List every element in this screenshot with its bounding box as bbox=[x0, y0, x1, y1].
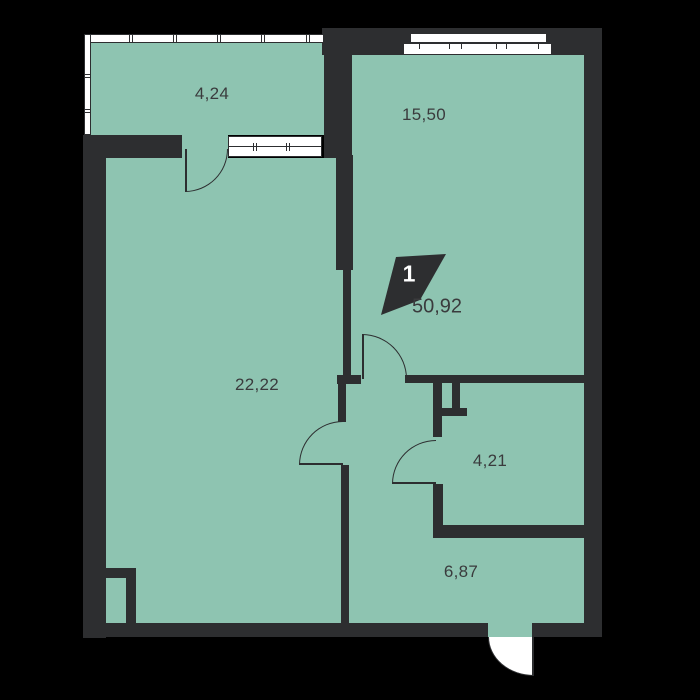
window-balcony-left bbox=[84, 34, 91, 135]
floor-plan: 4,24 15,50 22,22 4,21 6,87 1 50,92 bbox=[0, 0, 700, 700]
window-main-room bbox=[228, 136, 322, 157]
total-area-label: 50,92 bbox=[412, 296, 462, 319]
room-area-label-bathroom: 4,21 bbox=[473, 451, 507, 471]
wall-interior-lower bbox=[341, 465, 349, 637]
room-count-value: 1 bbox=[403, 261, 416, 288]
wall-bathroom-left-upper bbox=[433, 383, 442, 437]
wall-interior-mid bbox=[338, 384, 346, 422]
door-entrance-arc bbox=[488, 637, 534, 676]
wall-door-jamb-cap bbox=[337, 375, 361, 384]
room-area-label-main-room: 22,22 bbox=[235, 375, 279, 395]
wall-interior-upper bbox=[343, 270, 351, 378]
wall-right bbox=[584, 28, 602, 637]
room-area-label-balcony: 4,24 bbox=[195, 84, 229, 104]
window-balcony-top bbox=[84, 34, 324, 43]
wall-niche-right bbox=[126, 578, 136, 623]
wall-bottom-left-segment bbox=[83, 623, 488, 637]
floor-main-room bbox=[106, 158, 350, 623]
wall-balcony-divider bbox=[324, 28, 352, 158]
room-area-label-living-room: 15,50 bbox=[402, 105, 446, 125]
window-living-room-lower bbox=[403, 43, 552, 55]
wall-bathroom-top bbox=[405, 375, 602, 383]
room-area-label-hallway: 6,87 bbox=[444, 562, 478, 582]
wall-bathroom-bottom bbox=[433, 525, 602, 538]
wall-duct-horizontal bbox=[442, 408, 467, 416]
floor-entrance-doorway bbox=[488, 623, 532, 638]
window-living-room-upper bbox=[410, 33, 547, 43]
floor-living-room bbox=[351, 55, 584, 377]
wall-left bbox=[83, 135, 106, 638]
wall-under-balcony bbox=[83, 135, 182, 158]
wall-interior-thick bbox=[336, 155, 353, 270]
wall-niche-top bbox=[106, 568, 136, 578]
